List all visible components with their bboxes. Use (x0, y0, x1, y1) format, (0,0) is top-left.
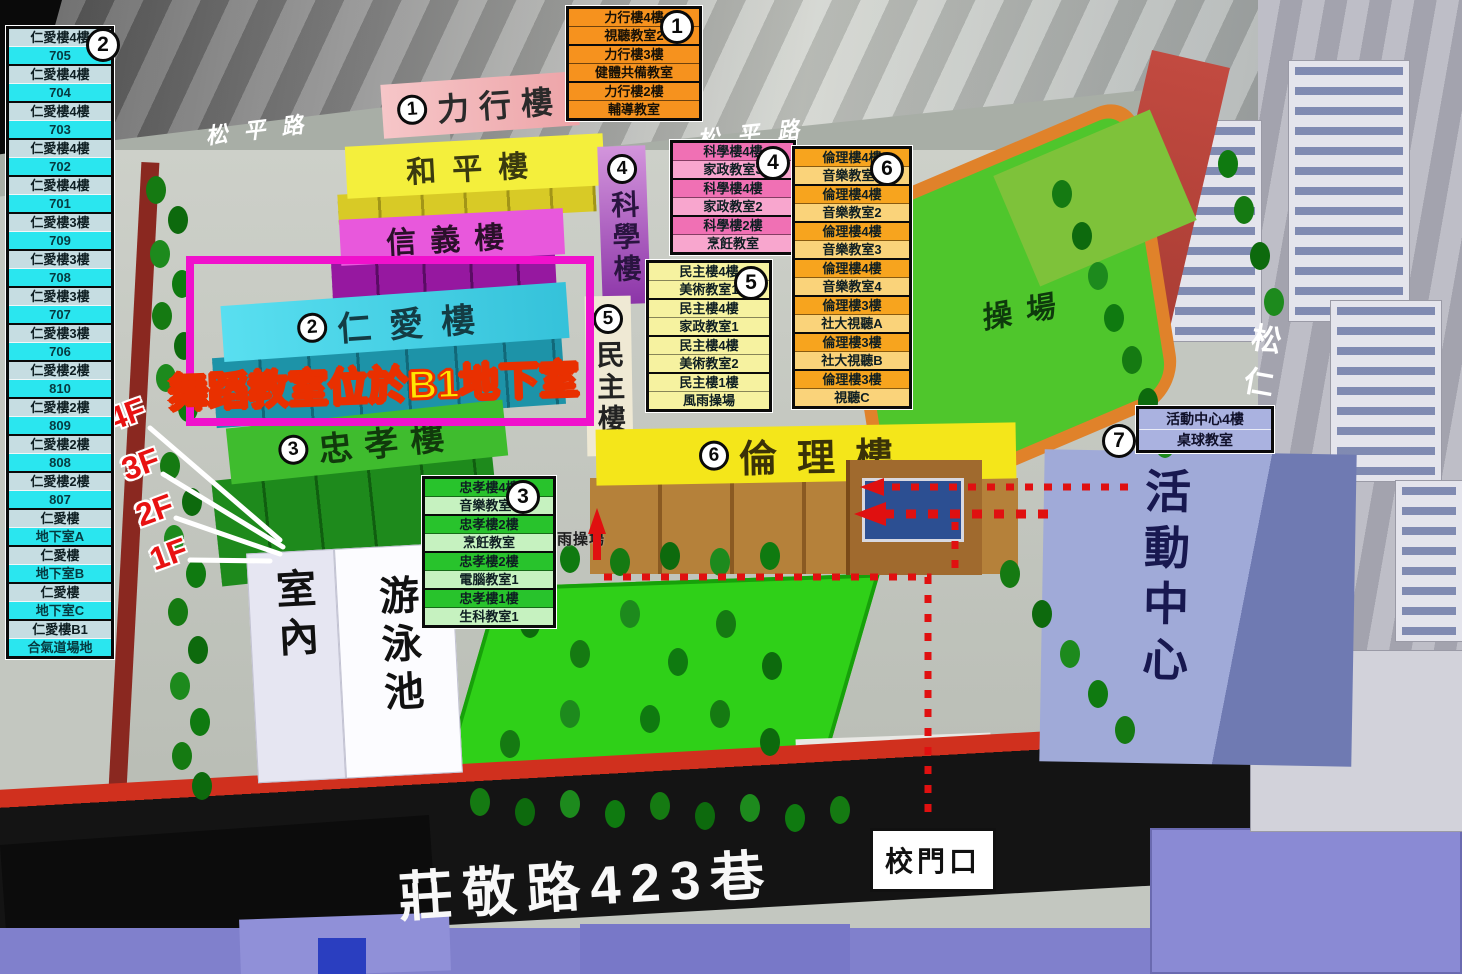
legend-room: 音樂教室3 (795, 241, 909, 258)
legend-room: 社大視聽A (795, 315, 909, 332)
legend-entry: 仁愛樓4樓 701 (9, 177, 111, 214)
legend-room: 桌球教室 (1139, 430, 1271, 450)
legend-floor: 民主樓4樓 (649, 300, 769, 318)
legend-floor: 仁愛樓3樓 (9, 214, 111, 232)
legend-entry: 仁愛樓2樓 809 (9, 399, 111, 436)
legend-floor: 力行樓2樓 (569, 83, 699, 101)
legend-floor: 仁愛樓2樓 (9, 362, 111, 380)
legend-floor: 仁愛樓2樓 (9, 399, 111, 417)
legend-entry: 活動中心4樓 桌球教室 (1139, 409, 1271, 450)
legend-entry: 仁愛樓4樓 704 (9, 66, 111, 103)
building-kexue: 4 科學樓 (597, 145, 650, 305)
legend-entry: 倫理樓4樓 音樂教室2 (795, 186, 909, 223)
tower-building (1395, 480, 1462, 642)
bottom-right-building (1150, 828, 1462, 974)
legend-entry: 仁愛樓B1 合氣道場地 (9, 621, 111, 656)
building-lixing-label: 力行樓 (435, 76, 564, 131)
legend-floor: 仁愛樓4樓 (9, 66, 111, 84)
legend-entry: 民主樓4樓 家政教室1 (649, 300, 769, 337)
legend-floor: 忠孝樓2樓 (425, 553, 553, 571)
legend-room: 703 (9, 121, 111, 138)
badge-legend-2: 2 (86, 28, 120, 62)
legend-entry: 倫理樓3樓 社大視聽B (795, 334, 909, 371)
legend-floor: 仁愛樓B1 (9, 621, 111, 639)
legend-floor: 仁愛樓3樓 (9, 251, 111, 269)
legend-floor: 科學樓4樓 (673, 180, 793, 198)
legend-entry: 倫理樓3樓 視聽C (795, 371, 909, 406)
legend-entry: 仁愛樓2樓 807 (9, 473, 111, 510)
legend-room: 健體共備教室 (569, 64, 699, 81)
badge-lixing: 1 (396, 94, 428, 126)
legend-room: 809 (9, 417, 111, 434)
badge-legend-5: 5 (734, 266, 768, 300)
badge-legend-3: 3 (506, 480, 540, 514)
legend-room: 風雨操場 (649, 392, 769, 409)
legend-floor: 仁愛樓 (9, 547, 111, 565)
legend-floor: 仁愛樓3樓 (9, 325, 111, 343)
pool-left-face: 室內 (246, 549, 346, 783)
legend-entry: 倫理樓4樓 音樂教室4 (795, 260, 909, 297)
legend-entry: 仁愛樓2樓 808 (9, 436, 111, 473)
building-xinyi-label: 信義樓 (385, 212, 519, 263)
legend-floor: 民主樓4樓 (649, 337, 769, 355)
legend-entry: 忠孝樓2樓 電腦教室1 (425, 553, 553, 590)
legend-entry: 仁愛樓3樓 706 (9, 325, 111, 362)
legend-floor: 忠孝樓1樓 (425, 590, 553, 608)
legend-entry: 倫理樓4樓 音樂教室3 (795, 223, 909, 260)
legend-floor: 仁愛樓3樓 (9, 288, 111, 306)
legend-room: 烹飪教室 (673, 235, 793, 252)
legend-entry: 仁愛樓4樓 702 (9, 140, 111, 177)
legend-entry: 忠孝樓1樓 生科教室1 (425, 590, 553, 625)
legend-floor: 倫理樓4樓 (795, 260, 909, 278)
legend-room: 家政教室2 (673, 198, 793, 215)
building-minzhu-label: 民主樓 (588, 340, 630, 437)
gate-label: 校門口 (870, 828, 996, 892)
legend-room: 808 (9, 454, 111, 471)
legend-entry: 民主樓1樓 風雨操場 (649, 374, 769, 409)
badge-legend-4: 4 (756, 146, 790, 180)
legend-room: 烹飪教室 (425, 534, 553, 551)
legend-entry: 力行樓2樓 輔導教室 (569, 83, 699, 118)
legend-floor: 仁愛樓 (9, 584, 111, 602)
legend-floor: 忠孝樓2樓 (425, 516, 553, 534)
legend-room: 視聽C (795, 389, 909, 406)
badge-legend-6: 6 (870, 152, 904, 186)
legend-room: 706 (9, 343, 111, 360)
legend-floor: 仁愛樓 (9, 510, 111, 528)
legend-floor: 仁愛樓2樓 (9, 436, 111, 454)
tree-cluster (0, 0, 20, 28)
pool-left-label: 室內 (262, 567, 331, 782)
legend-room: 地下室C (9, 602, 111, 619)
legend-entry: 仁愛樓 地下室C (9, 584, 111, 621)
legend-room: 輔導教室 (569, 101, 699, 118)
legend-room: 合氣道場地 (9, 639, 111, 656)
legend-room: 807 (9, 491, 111, 508)
legend-room: 生科教室1 (425, 608, 553, 625)
legend-floor: 仁愛樓4樓 (9, 140, 111, 158)
legend-room: 電腦教室1 (425, 571, 553, 588)
legend-room: 702 (9, 158, 111, 175)
campus-map: 1 力行樓 和平樓 信義樓 2 仁愛樓 3 忠孝樓 4 科學樓 5 民主樓 6 … (0, 0, 1462, 974)
legend-floor: 力行樓3樓 (569, 46, 699, 64)
legend-renai-rooms: 仁愛樓4樓 705 仁愛樓4樓 704 仁愛樓4樓 703 仁愛樓4樓 702 … (6, 26, 114, 659)
legend-floor: 仁愛樓4樓 (9, 103, 111, 121)
legend-room: 地下室A (9, 528, 111, 545)
legend-entry: 仁愛樓3樓 708 (9, 251, 111, 288)
legend-floor: 民主樓1樓 (649, 374, 769, 392)
legend-entry: 仁愛樓 地下室A (9, 510, 111, 547)
legend-room: 音樂教室4 (795, 278, 909, 295)
legend-entry: 民主樓4樓 美術教室2 (649, 337, 769, 374)
legend-entry: 科學樓4樓 家政教室2 (673, 180, 793, 217)
legend-room: 地下室B (9, 565, 111, 582)
badge-legend-7: 7 (1102, 424, 1136, 458)
legend-room: 家政教室1 (649, 318, 769, 335)
bottom-building (580, 924, 850, 974)
legend-room: 701 (9, 195, 111, 212)
legend-floor: 倫理樓3樓 (795, 297, 909, 315)
legend-entry: 力行樓3樓 健體共備教室 (569, 46, 699, 83)
legend-entry: 忠孝樓2樓 烹飪教室 (425, 516, 553, 553)
legend-floor: 倫理樓3樓 (795, 334, 909, 352)
building-activity-center-label: 活動中心 (1129, 467, 1199, 692)
tower-building (1288, 60, 1410, 322)
bottom-blue-roof (318, 938, 366, 974)
legend-room: 707 (9, 306, 111, 323)
legend-floor: 仁愛樓2樓 (9, 473, 111, 491)
legend-entry: 仁愛樓4樓 703 (9, 103, 111, 140)
legend-room: 音樂教室2 (795, 204, 909, 221)
badge-kexue: 4 (607, 154, 638, 185)
badge-lunli: 6 (699, 440, 730, 471)
legend-entry: 科學樓2樓 烹飪教室 (673, 217, 793, 252)
legend-room: 709 (9, 232, 111, 249)
legend-entry: 仁愛樓3樓 707 (9, 288, 111, 325)
legend-entry: 仁愛樓2樓 810 (9, 362, 111, 399)
badge-zhongxiao: 3 (277, 433, 310, 466)
legend-floor: 仁愛樓4樓 (9, 177, 111, 195)
legend-room: 704 (9, 84, 111, 101)
legend-activity-rooms: 活動中心4樓 桌球教室 (1136, 406, 1274, 453)
legend-room: 美術教室2 (649, 355, 769, 372)
entrance-window (862, 478, 964, 542)
building-activity-center: 活動中心 (1039, 449, 1356, 766)
legend-floor: 倫理樓3樓 (795, 371, 909, 389)
badge-minzhu: 5 (593, 304, 624, 335)
legend-lunli-rooms: 倫理樓4樓 音樂教室1 倫理樓4樓 音樂教室2 倫理樓4樓 音樂教室3 倫理樓4… (792, 146, 912, 409)
badge-legend-1: 1 (660, 10, 694, 44)
legend-floor: 活動中心4樓 (1139, 409, 1271, 430)
legend-entry: 仁愛樓 地下室B (9, 547, 111, 584)
legend-room: 708 (9, 269, 111, 286)
building-kexue-label: 科學樓 (603, 189, 646, 286)
building-heping-label: 和平樓 (405, 140, 545, 191)
legend-floor: 倫理樓4樓 (795, 186, 909, 204)
legend-floor: 科學樓2樓 (673, 217, 793, 235)
legend-floor: 倫理樓4樓 (795, 223, 909, 241)
legend-room: 社大視聽B (795, 352, 909, 369)
legend-room: 810 (9, 380, 111, 397)
legend-entry: 倫理樓3樓 社大視聽A (795, 297, 909, 334)
legend-entry: 仁愛樓3樓 709 (9, 214, 111, 251)
